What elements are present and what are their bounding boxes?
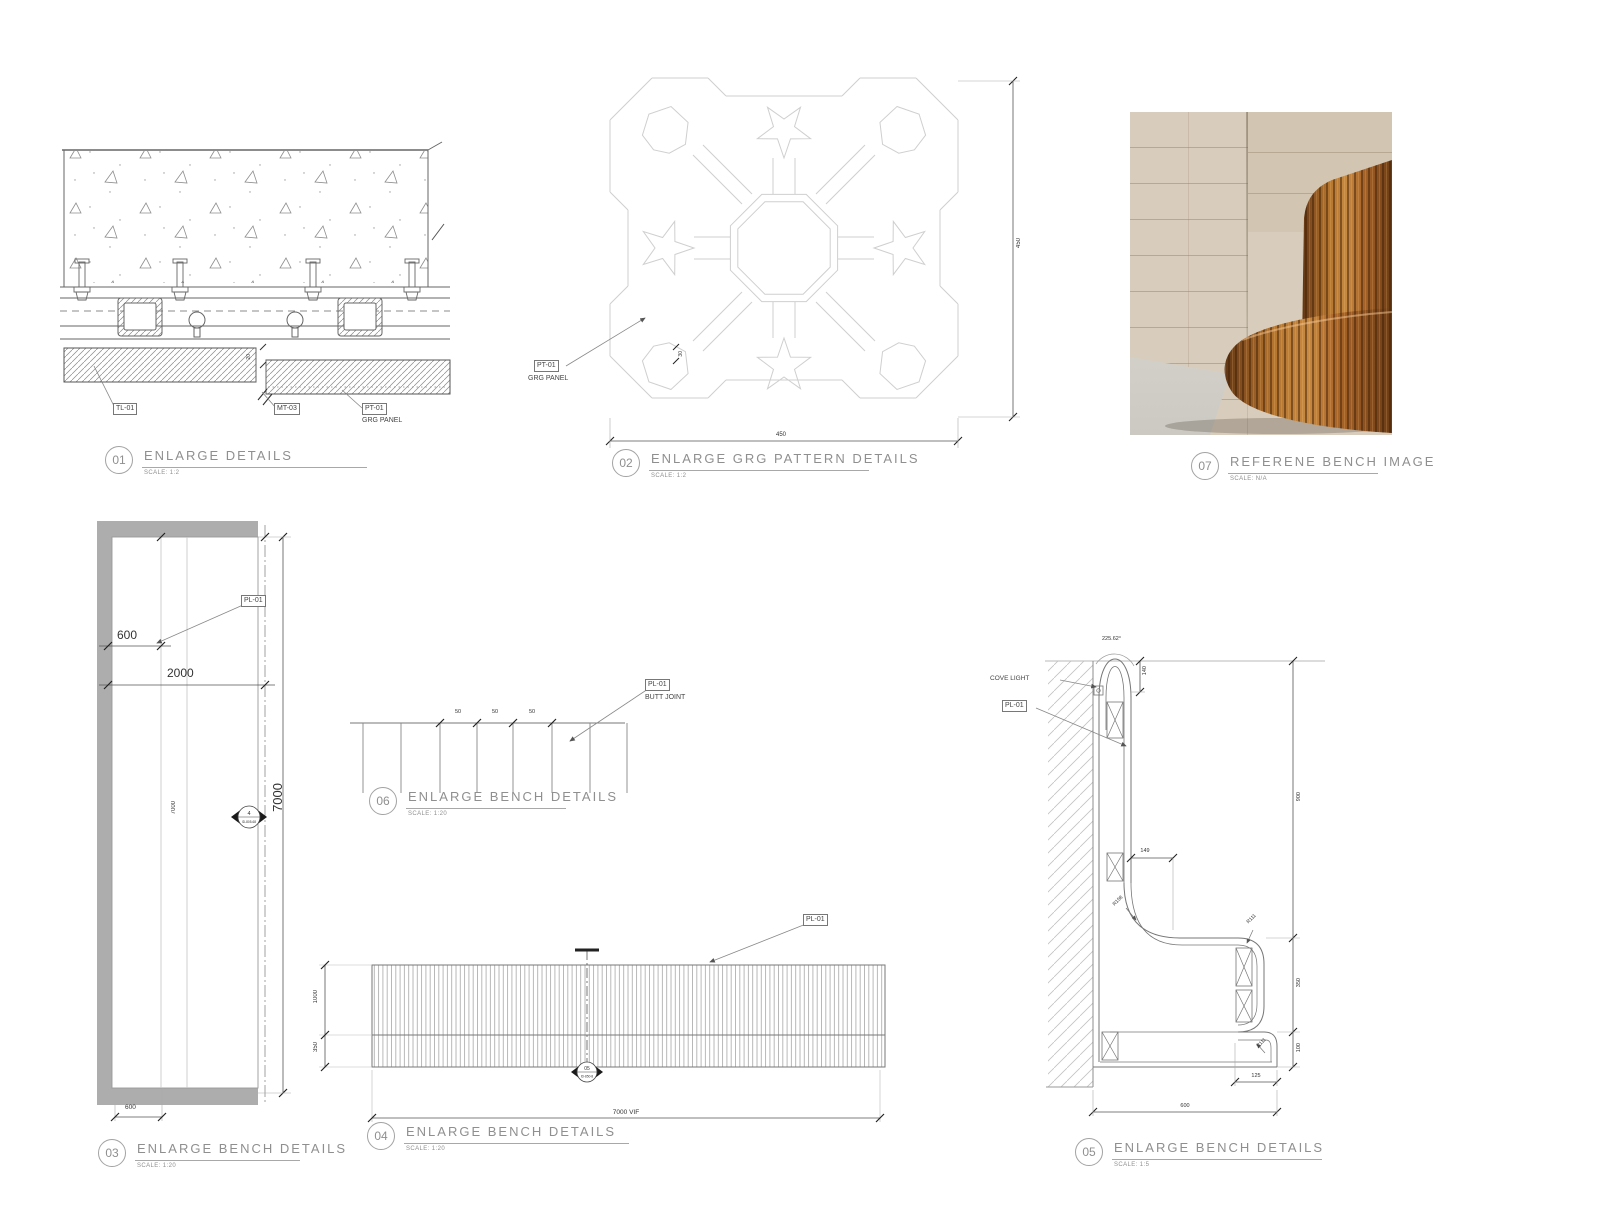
detail-02-scale: SCALE: 1:2: [649, 473, 869, 479]
detail-04-number: 04: [367, 1122, 395, 1150]
dim-600-bottom: 600: [125, 1104, 136, 1111]
d04-linework: 05 ID-850-8: [305, 910, 925, 1125]
label-grg-panel: GRG PANEL: [528, 374, 568, 383]
dim-inner-30: 30: [678, 351, 684, 357]
tag-pl-01: PL-01: [241, 595, 266, 607]
dim-50-b: 50: [492, 709, 498, 715]
d03-linework: 4 ID-805-68: [85, 515, 315, 1130]
d01-linework: [60, 140, 460, 440]
section-marker-diamond: 4 ID-805-68: [231, 806, 267, 828]
svg-text:05: 05: [584, 1066, 590, 1072]
tag-pl-01: PL-01: [803, 914, 828, 926]
detail-05-title: ENLARGE BENCH DETAILS: [1112, 1138, 1322, 1160]
detail-06-scale: SCALE: 1:20: [406, 811, 566, 817]
dim-600-top: 600: [117, 628, 137, 642]
photo-wood-bench: [1130, 112, 1392, 435]
detail-02-number: 02: [612, 449, 640, 477]
detail-03-number: 03: [98, 1139, 126, 1167]
tag-tl-01: TL-01: [113, 403, 137, 415]
detail-03-title: ENLARGE BENCH DETAILS: [135, 1139, 300, 1161]
tag-mt-03: MT-03: [274, 403, 300, 415]
label-butt-joint: BUTT JOINT: [645, 693, 685, 702]
svg-text:4: 4: [247, 811, 250, 817]
detail-03-bench-plan: 4 ID-805-68 600 2000 PL-01 7000 7000 600…: [85, 515, 315, 1175]
detail-01-number: 01: [105, 446, 133, 474]
detail-02-titleblock: 02 ENLARGE GRG PATTERN DETAILS SCALE: 1:…: [612, 449, 869, 479]
dim-2000: 2000: [167, 666, 194, 680]
detail-02-title: ENLARGE GRG PATTERN DETAILS: [649, 449, 869, 471]
islamic-star-pattern: [610, 78, 958, 398]
detail-05-number: 05: [1075, 1138, 1103, 1166]
dim-height-450: 450: [1016, 238, 1022, 248]
dim-350: 350: [313, 1042, 319, 1052]
detail-05-bench-section: COVE LIGHT PL-01 225.62° 140 149 R158 R1…: [950, 600, 1350, 1180]
detail-07-titleblock: 07 REFERENE BENCH IMAGE SCALE: N/A: [1191, 452, 1378, 482]
detail-06-titleblock: 06 ENLARGE BENCH DETAILS SCALE: 1:20: [369, 787, 566, 817]
detail-06-butt-joint: 50 50 50 PL-01 BUTT JOINT 06 ENLARGE BEN…: [345, 675, 695, 835]
detail-04-bench-elevation: 05 ID-850-8 1000 350 7000 VIF PL-01 04 E…: [305, 910, 925, 1165]
dim-140: 140: [1142, 666, 1148, 675]
dim-149: 149: [1140, 848, 1149, 854]
detail-04-scale: SCALE: 1:20: [404, 1146, 629, 1152]
detail-01-enlarge-details: TL-01 MT-03 PT-01 GRG PANEL 20 01 ENLARG…: [60, 140, 460, 485]
detail-07-reference-image: 07 REFERENE BENCH IMAGE SCALE: N/A: [1130, 112, 1392, 492]
dim-100: 100: [1296, 1043, 1302, 1052]
dim-900: 900: [1296, 792, 1302, 801]
tag-pl-01: PL-01: [645, 679, 670, 691]
d02-linework: [520, 60, 1040, 460]
detail-01-scale: SCALE: 1:2: [142, 470, 367, 476]
dim-angle: 225.62°: [1102, 636, 1121, 642]
label-grg-panel: GRG PANEL: [362, 416, 402, 425]
detail-01-titleblock: 01 ENLARGE DETAILS SCALE: 1:2: [105, 446, 367, 476]
dim-600: 600: [1180, 1103, 1189, 1109]
detail-05-titleblock: 05 ENLARGE BENCH DETAILS SCALE: 1:5: [1075, 1138, 1322, 1168]
detail-04-title: ENLARGE BENCH DETAILS: [404, 1122, 629, 1144]
detail-07-scale: SCALE: N/A: [1228, 476, 1378, 482]
dim-width-450: 450: [776, 432, 786, 438]
tag-pt-01: PT-01: [362, 403, 387, 415]
detail-05-scale: SCALE: 1:5: [1112, 1162, 1322, 1168]
dim-step-20: 20: [246, 354, 252, 360]
detail-07-title: REFERENE BENCH IMAGE: [1228, 452, 1378, 474]
svg-text:ID-805-68: ID-805-68: [242, 820, 256, 824]
detail-01-title: ENLARGE DETAILS: [142, 446, 367, 468]
tag-pl-01: PL-01: [1002, 700, 1027, 712]
dim-50-c: 50: [529, 709, 535, 715]
drawing-sheet: TL-01 MT-03 PT-01 GRG PANEL 20 01 ENLARG…: [0, 0, 1600, 1218]
detail-02-grg-pattern: PT-01 GRG PANEL 450 450 30 02 ENLARGE GR…: [520, 60, 1040, 500]
d06-linework: [345, 675, 695, 795]
dim-7000-right: 7000: [270, 783, 285, 812]
svg-text:ID-850-8: ID-850-8: [581, 1075, 594, 1079]
detail-03-titleblock: 03 ENLARGE BENCH DETAILS SCALE: 1:20: [98, 1139, 300, 1169]
detail-06-number: 06: [369, 787, 397, 815]
dim-1000: 1000: [313, 990, 319, 1003]
dim-125: 125: [1251, 1073, 1260, 1079]
label-cove-light: COVE LIGHT: [990, 674, 1029, 683]
detail-07-number: 07: [1191, 452, 1219, 480]
detail-04-titleblock: 04 ENLARGE BENCH DETAILS SCALE: 1:20: [367, 1122, 629, 1152]
detail-06-title: ENLARGE BENCH DETAILS: [406, 787, 566, 809]
tag-pt-01: PT-01: [534, 360, 559, 372]
reference-photo: [1130, 112, 1392, 435]
dim-7000-vif: 7000 VIF: [613, 1109, 639, 1116]
dim-7000-inner: 7000: [171, 801, 177, 814]
dim-50-a: 50: [455, 709, 461, 715]
dim-350: 350: [1296, 978, 1302, 987]
detail-03-scale: SCALE: 1:20: [135, 1163, 300, 1169]
